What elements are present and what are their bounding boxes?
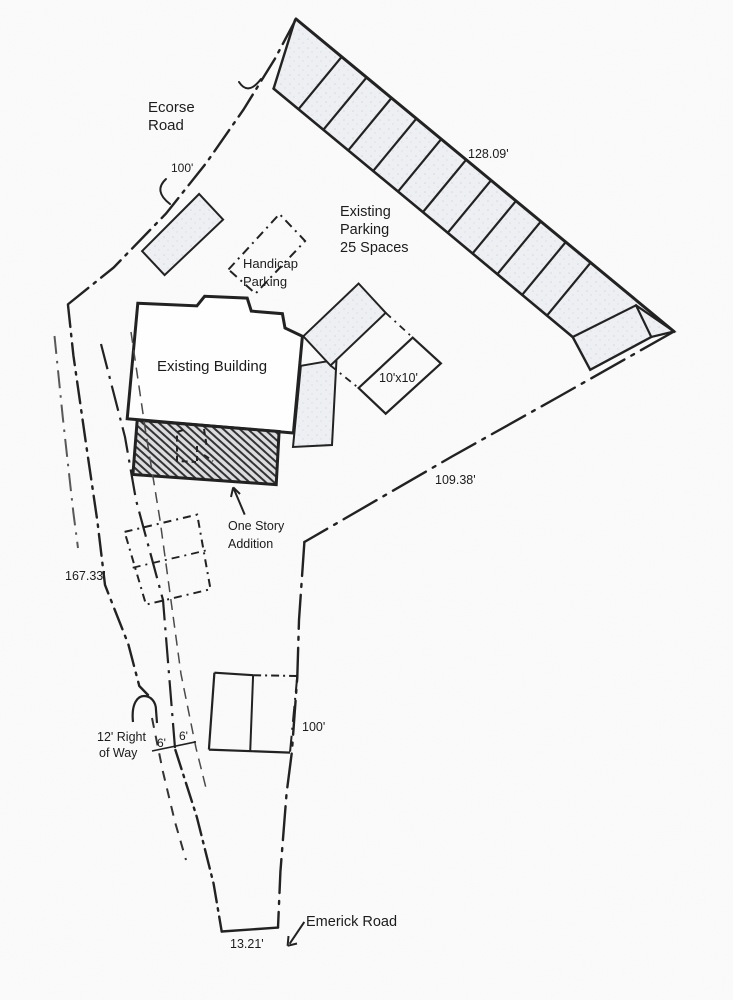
svg-text:Emerick Road: Emerick Road (306, 914, 397, 930)
svg-text:Parking: Parking (243, 274, 287, 289)
svg-text:6': 6' (157, 736, 166, 750)
svg-text:Handicap: Handicap (243, 256, 298, 271)
svg-text:109.38': 109.38' (435, 473, 476, 487)
svg-text:12' Right: 12' Right (97, 730, 146, 744)
svg-text:Ecorse: Ecorse (148, 99, 195, 116)
svg-text:Parking: Parking (340, 222, 389, 238)
svg-text:Addition: Addition (228, 537, 273, 551)
svg-text:of Way: of Way (99, 746, 138, 760)
svg-text:25 Spaces: 25 Spaces (340, 240, 409, 256)
svg-text:128.09': 128.09' (468, 147, 509, 161)
svg-text:100': 100' (302, 720, 325, 734)
svg-text:Existing Building: Existing Building (157, 358, 267, 375)
svg-text:167.33': 167.33' (65, 569, 106, 583)
svg-text:10'x10': 10'x10' (379, 371, 418, 385)
svg-text:100': 100' (171, 161, 193, 175)
svg-text:Existing: Existing (340, 204, 391, 220)
svg-text:6': 6' (179, 729, 188, 743)
svg-text:Road: Road (148, 117, 184, 134)
svg-text:13.21': 13.21' (230, 937, 264, 951)
svg-text:One Story: One Story (228, 519, 285, 533)
